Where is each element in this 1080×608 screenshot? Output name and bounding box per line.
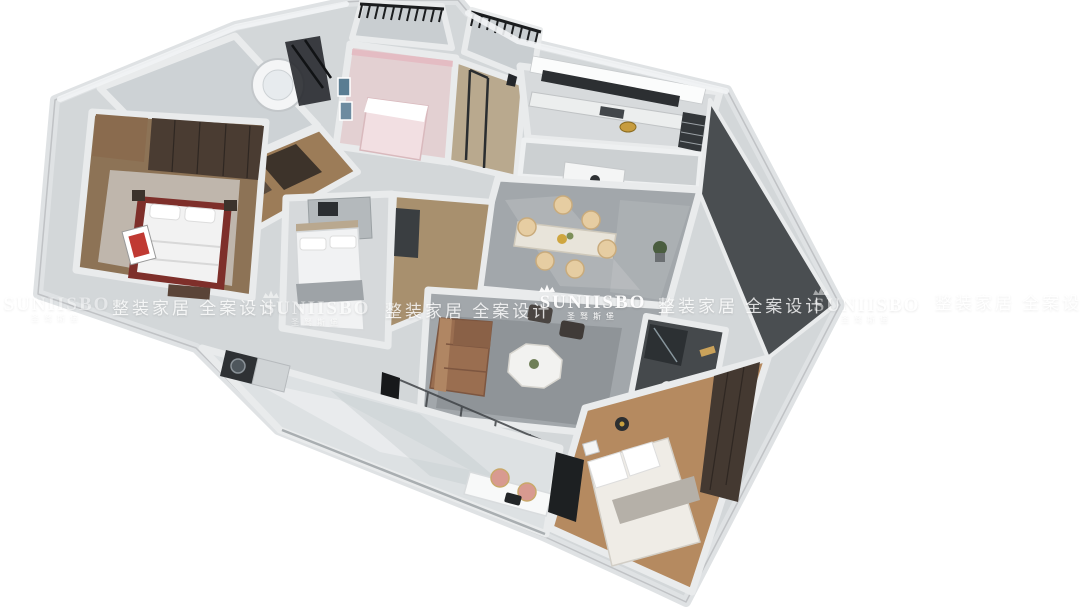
bed-pillow bbox=[300, 238, 326, 250]
watermark-brand-sub: 圣驽斯堡 bbox=[2, 315, 112, 323]
dining-plant bbox=[653, 241, 667, 255]
sofa-chaise bbox=[453, 320, 492, 348]
master-pillow bbox=[184, 207, 215, 224]
master-pillow bbox=[149, 204, 180, 221]
bathtub-basin bbox=[263, 70, 293, 100]
room-kids-bedroom bbox=[336, 44, 456, 162]
master-wardrobe-left bbox=[92, 114, 148, 162]
dining-chair bbox=[554, 196, 572, 214]
watermark-tagline: 整装家居 全案设计 bbox=[658, 292, 825, 317]
brand-badge bbox=[620, 122, 636, 132]
dining-plant-pot bbox=[655, 253, 665, 262]
watermark-tagline: 整装家居 全案设计 bbox=[935, 289, 1080, 314]
floor-lamp-bulb bbox=[620, 422, 625, 427]
watermark-tagline: 整装家居 全案设计 bbox=[385, 297, 552, 322]
table-flowers bbox=[557, 234, 567, 244]
bedside-table bbox=[132, 190, 145, 201]
watermark-logo: SUNIISBO 圣驽斯堡 bbox=[812, 287, 922, 324]
watermark-brand-text: SUNIISBO bbox=[538, 293, 648, 312]
dining-chair bbox=[566, 260, 584, 278]
watermark-logo: SUNIISBO 圣驽斯堡 bbox=[538, 284, 648, 321]
watermark-brand-sub: 圣驽斯堡 bbox=[538, 313, 648, 321]
watermark-logo: SUNIISBO 圣驽斯堡 bbox=[2, 286, 112, 323]
room-master-bedroom bbox=[76, 112, 266, 300]
kids-wall-art bbox=[340, 102, 352, 120]
bedside-table bbox=[224, 200, 237, 211]
watermark-brand-text: SUNIISBO bbox=[2, 295, 112, 314]
watermark-tagline: 整装家居 全案设计 bbox=[112, 294, 279, 319]
room-balcony-small-left bbox=[352, 2, 452, 48]
dining-chair bbox=[518, 218, 536, 236]
table-flowers-leaf bbox=[567, 233, 574, 240]
watermark-brand-text: SUNIISBO bbox=[262, 299, 372, 318]
dining-chair bbox=[582, 211, 600, 229]
vanity-mirror bbox=[318, 202, 338, 216]
coffee-table-plant bbox=[529, 359, 539, 369]
pink-chair bbox=[491, 469, 509, 487]
watermark-brand-sub: 圣驽斯堡 bbox=[262, 319, 372, 327]
dining-chair bbox=[536, 252, 554, 270]
kids-wall-art bbox=[338, 78, 350, 96]
room-entry-hall bbox=[448, 57, 524, 178]
dining-chair bbox=[598, 240, 616, 258]
screenshot-root: SUNIISBO 圣驽斯堡 整装家居 全案设计 SUNIISBO 圣驽斯堡 整装… bbox=[0, 0, 1080, 608]
bed-pillow bbox=[330, 236, 356, 248]
washer-door bbox=[231, 359, 245, 373]
watermark-brand-text: SUNIISBO bbox=[812, 296, 922, 315]
corridor2-cabinet bbox=[394, 208, 420, 258]
watermark-logo: SUNIISBO 圣驽斯堡 bbox=[262, 290, 372, 327]
watermark-brand-sub: 圣驽斯堡 bbox=[812, 316, 922, 324]
master-wardrobe-dark bbox=[148, 118, 264, 180]
